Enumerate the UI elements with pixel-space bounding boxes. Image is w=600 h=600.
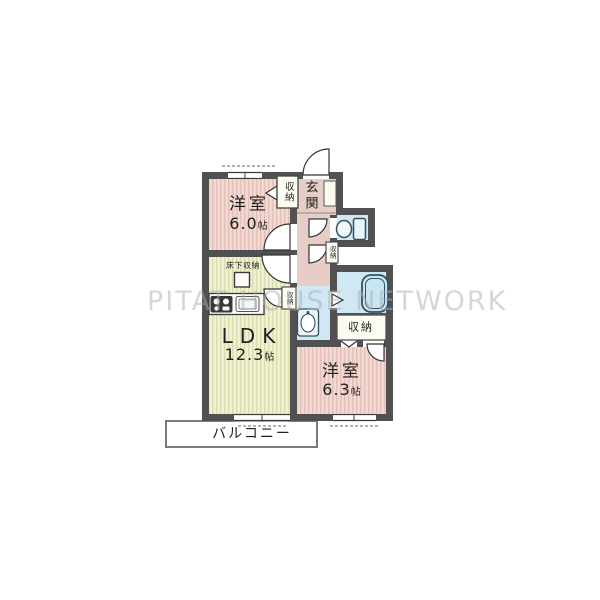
balcony-label: バルコニー [212,427,292,441]
bedroom2-closet-door-icon [341,341,357,347]
ldk-size: 12.3帖 [225,347,276,363]
underfloor-storage-hatch [235,273,250,288]
bedroom1-size-num: 6.0 [229,214,257,233]
ldk-size-num: 12.3 [225,345,265,364]
watermark-text: PITAT HOUSE NETWORK [147,286,507,317]
closet-hallway-label: 収納 [329,246,336,259]
window-bedroom2 [333,414,376,422]
bedroom1-size: 6.0帖 [229,216,268,232]
entrance-label: 玄関 [304,180,317,212]
closet-bedroom2-label: 収納 [348,322,374,333]
window-bedroom1 [228,172,262,180]
bedroom1-size-unit: 帖 [258,221,269,232]
ldk-label: LDK [222,326,283,346]
bedroom2-label: 洋室 [322,364,362,381]
bedroom2-size-num: 6.3 [322,380,350,399]
floorplan-image: 洋室 6.0帖 LDK 12.3帖 洋室 6.3帖 玄関 収納 収納 収納 収納… [0,0,600,600]
shoe-cabinet [324,181,336,206]
underfloor-storage-label: 床下収納 [226,262,260,270]
window-ldk [234,414,290,422]
entrance-door-icon [303,149,329,175]
ldk-size-unit: 帖 [264,352,275,363]
bedroom2-size-unit: 帖 [351,387,362,398]
bedroom2-size: 6.3帖 [322,382,361,398]
bedroom1-label: 洋室 [229,197,269,214]
closet-bedroom1-label: 収納 [283,182,293,203]
